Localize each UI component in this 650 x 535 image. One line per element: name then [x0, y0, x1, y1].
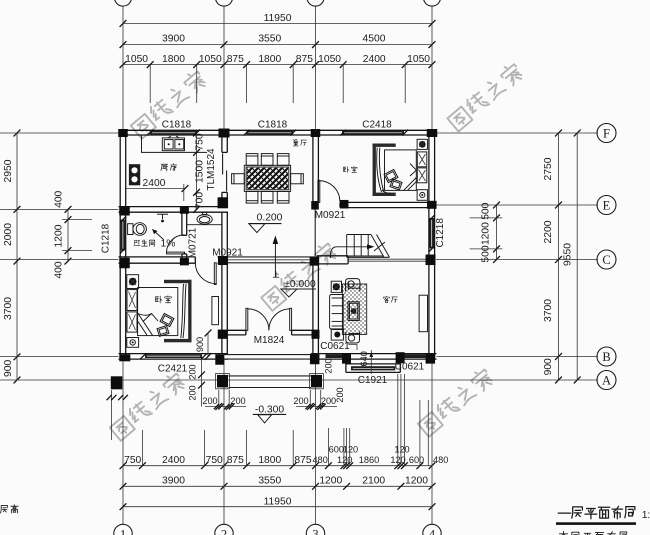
svg-text:1%: 1% [161, 239, 176, 250]
svg-text:1500: 1500 [195, 160, 206, 183]
svg-text:1050: 1050 [199, 54, 222, 65]
svg-text:2400: 2400 [363, 54, 386, 65]
svg-text:1:: 1: [642, 510, 650, 521]
svg-text:1800: 1800 [258, 455, 281, 466]
svg-text:875: 875 [227, 455, 244, 466]
svg-text:1200: 1200 [481, 222, 492, 245]
svg-text:875: 875 [294, 455, 311, 466]
svg-text:C1218: C1218 [101, 223, 112, 253]
svg-text:M0921: M0921 [212, 248, 243, 259]
svg-text:2750: 2750 [543, 157, 554, 180]
svg-text:640: 640 [359, 351, 369, 366]
svg-text:2: 2 [221, 528, 227, 535]
svg-text:C2421: C2421 [158, 364, 188, 375]
svg-text:0.200: 0.200 [257, 213, 283, 224]
svg-text:C1818: C1818 [162, 119, 192, 130]
svg-text:11950: 11950 [264, 497, 292, 508]
svg-text:C2418: C2418 [362, 119, 392, 130]
svg-text:1050: 1050 [318, 54, 341, 65]
svg-text:1200: 1200 [405, 476, 428, 487]
svg-text:3900: 3900 [162, 476, 185, 487]
svg-text:200: 200 [335, 387, 345, 402]
svg-text:M0921: M0921 [315, 210, 346, 221]
svg-text:600: 600 [329, 445, 344, 455]
svg-text:1200: 1200 [319, 476, 342, 487]
svg-text:3700: 3700 [3, 297, 14, 320]
svg-text:C1818: C1818 [258, 119, 288, 130]
svg-text:480: 480 [433, 455, 448, 465]
svg-text:B: B [602, 350, 610, 364]
svg-text:200: 200 [202, 396, 217, 406]
svg-text:500: 500 [481, 245, 492, 262]
svg-text:A: A [602, 373, 611, 387]
svg-text:3: 3 [312, 528, 318, 535]
svg-text:750: 750 [195, 133, 206, 150]
svg-text:C: C [602, 253, 610, 267]
svg-text:200: 200 [324, 358, 334, 373]
svg-text:750: 750 [206, 455, 223, 466]
svg-text:200: 200 [293, 396, 308, 406]
svg-text:1050: 1050 [407, 54, 430, 65]
svg-text:400: 400 [54, 261, 65, 278]
svg-text:E: E [603, 198, 611, 212]
svg-text:120: 120 [394, 445, 409, 455]
svg-text:C0621: C0621 [395, 361, 425, 372]
svg-text:9550: 9550 [563, 243, 574, 266]
svg-text:C0621: C0621 [320, 341, 350, 352]
svg-text:200: 200 [188, 385, 198, 400]
svg-text:480: 480 [313, 455, 328, 465]
svg-text:1800: 1800 [162, 54, 185, 65]
svg-text:2100: 2100 [362, 476, 385, 487]
svg-text:3700: 3700 [543, 299, 554, 322]
svg-text:1050: 1050 [125, 54, 148, 65]
svg-text:750: 750 [124, 455, 141, 466]
svg-text:2000: 2000 [3, 223, 14, 246]
svg-text:900: 900 [543, 358, 554, 375]
svg-text:4: 4 [429, 528, 436, 535]
svg-text:875: 875 [227, 54, 244, 65]
svg-text:3550: 3550 [258, 34, 281, 45]
svg-text:C1921: C1921 [358, 375, 388, 386]
svg-text:±0.000: ±0.000 [284, 279, 316, 290]
svg-text:4500: 4500 [363, 34, 386, 45]
svg-text:2400: 2400 [162, 455, 185, 466]
svg-text:700: 700 [195, 192, 206, 209]
svg-text:C1218: C1218 [435, 218, 446, 248]
svg-text:TLM1524: TLM1524 [206, 148, 217, 191]
svg-text:2950: 2950 [3, 159, 14, 182]
svg-text:1860: 1860 [359, 455, 379, 465]
svg-text:3550: 3550 [258, 476, 281, 487]
svg-text:120: 120 [343, 445, 358, 455]
svg-text:875: 875 [296, 54, 313, 65]
svg-text:11950: 11950 [264, 13, 292, 24]
svg-text:M1824: M1824 [254, 335, 285, 346]
svg-text:M0721: M0721 [188, 227, 199, 258]
svg-text:2200: 2200 [543, 220, 554, 243]
svg-text:900: 900 [195, 337, 205, 352]
svg-text:1200: 1200 [54, 224, 65, 247]
svg-text:1800: 1800 [258, 54, 281, 65]
svg-text:3900: 3900 [162, 34, 185, 45]
svg-text:900: 900 [3, 360, 14, 377]
svg-text:200: 200 [188, 364, 198, 379]
svg-text:F: F [603, 126, 610, 140]
svg-text:1: 1 [120, 528, 126, 535]
svg-text:200: 200 [321, 396, 336, 406]
svg-text:400: 400 [54, 190, 65, 207]
svg-text:2400: 2400 [143, 178, 166, 189]
